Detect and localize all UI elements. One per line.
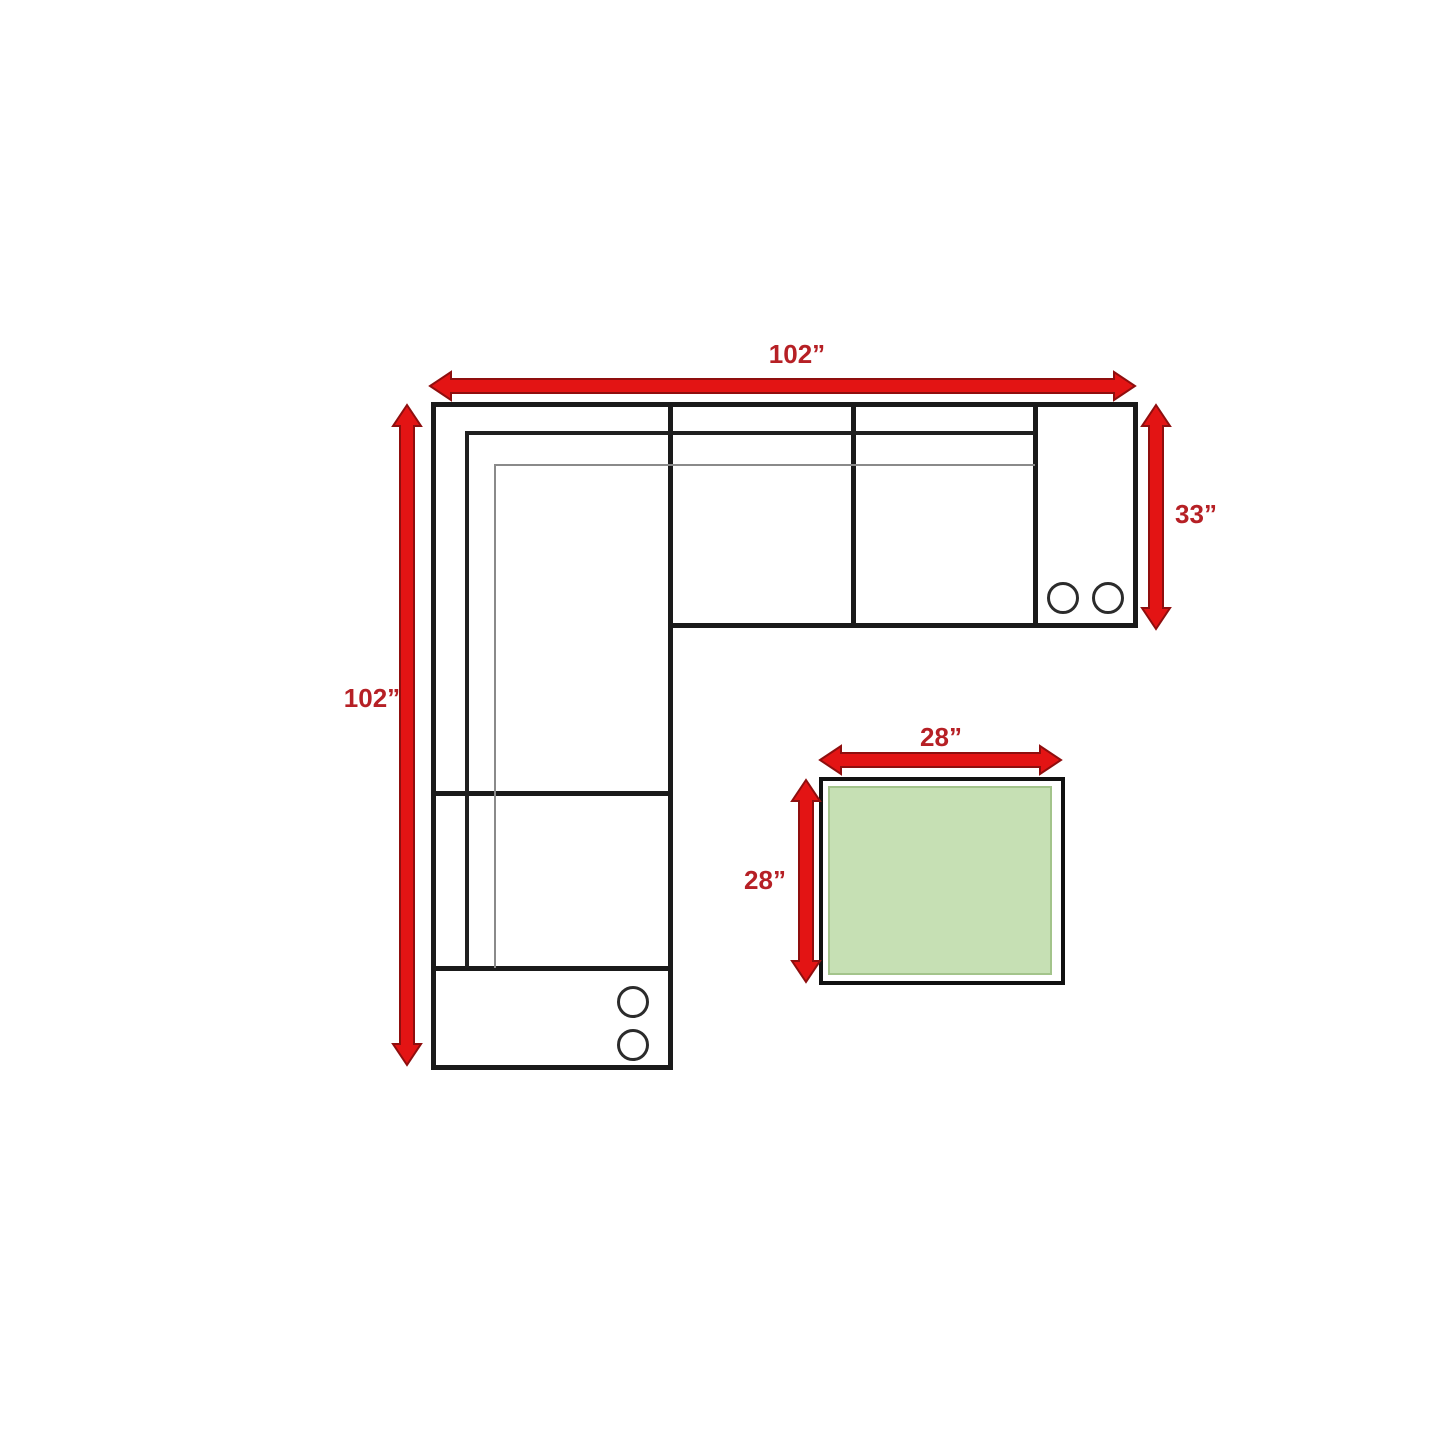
dimension-arrow-sofa-width	[427, 368, 1138, 404]
dimension-arrow-ottoman-depth	[788, 777, 824, 985]
cupholder-icon	[1092, 582, 1124, 614]
dimension-label-ottoman-depth: 28”	[744, 867, 786, 893]
dimension-label-sofa-width: 102”	[769, 341, 825, 367]
backrest-line-left	[465, 431, 469, 968]
sofa-dimension-diagram: 102” 102” 33” 28” 28”	[0, 0, 1445, 1445]
cupholder-icon	[617, 986, 649, 1018]
ottoman-cushion	[828, 786, 1052, 975]
seat-divider-top-2	[851, 402, 856, 628]
cupholder-icon	[617, 1029, 649, 1061]
dimension-arrow-sofa-right-depth	[1138, 402, 1174, 632]
armrest-divider-right	[1033, 402, 1038, 628]
dimension-label-sofa-depth: 102”	[344, 685, 400, 711]
seat-seam-line-left	[494, 464, 496, 968]
dimension-arrow-sofa-depth	[389, 402, 425, 1068]
backrest-line-top	[465, 431, 1035, 435]
dimension-label-ottoman-width: 28”	[920, 724, 962, 750]
dimension-label-sofa-right-depth: 33”	[1175, 501, 1217, 527]
seat-seam-line-top	[494, 464, 1035, 466]
cupholder-icon	[1047, 582, 1079, 614]
